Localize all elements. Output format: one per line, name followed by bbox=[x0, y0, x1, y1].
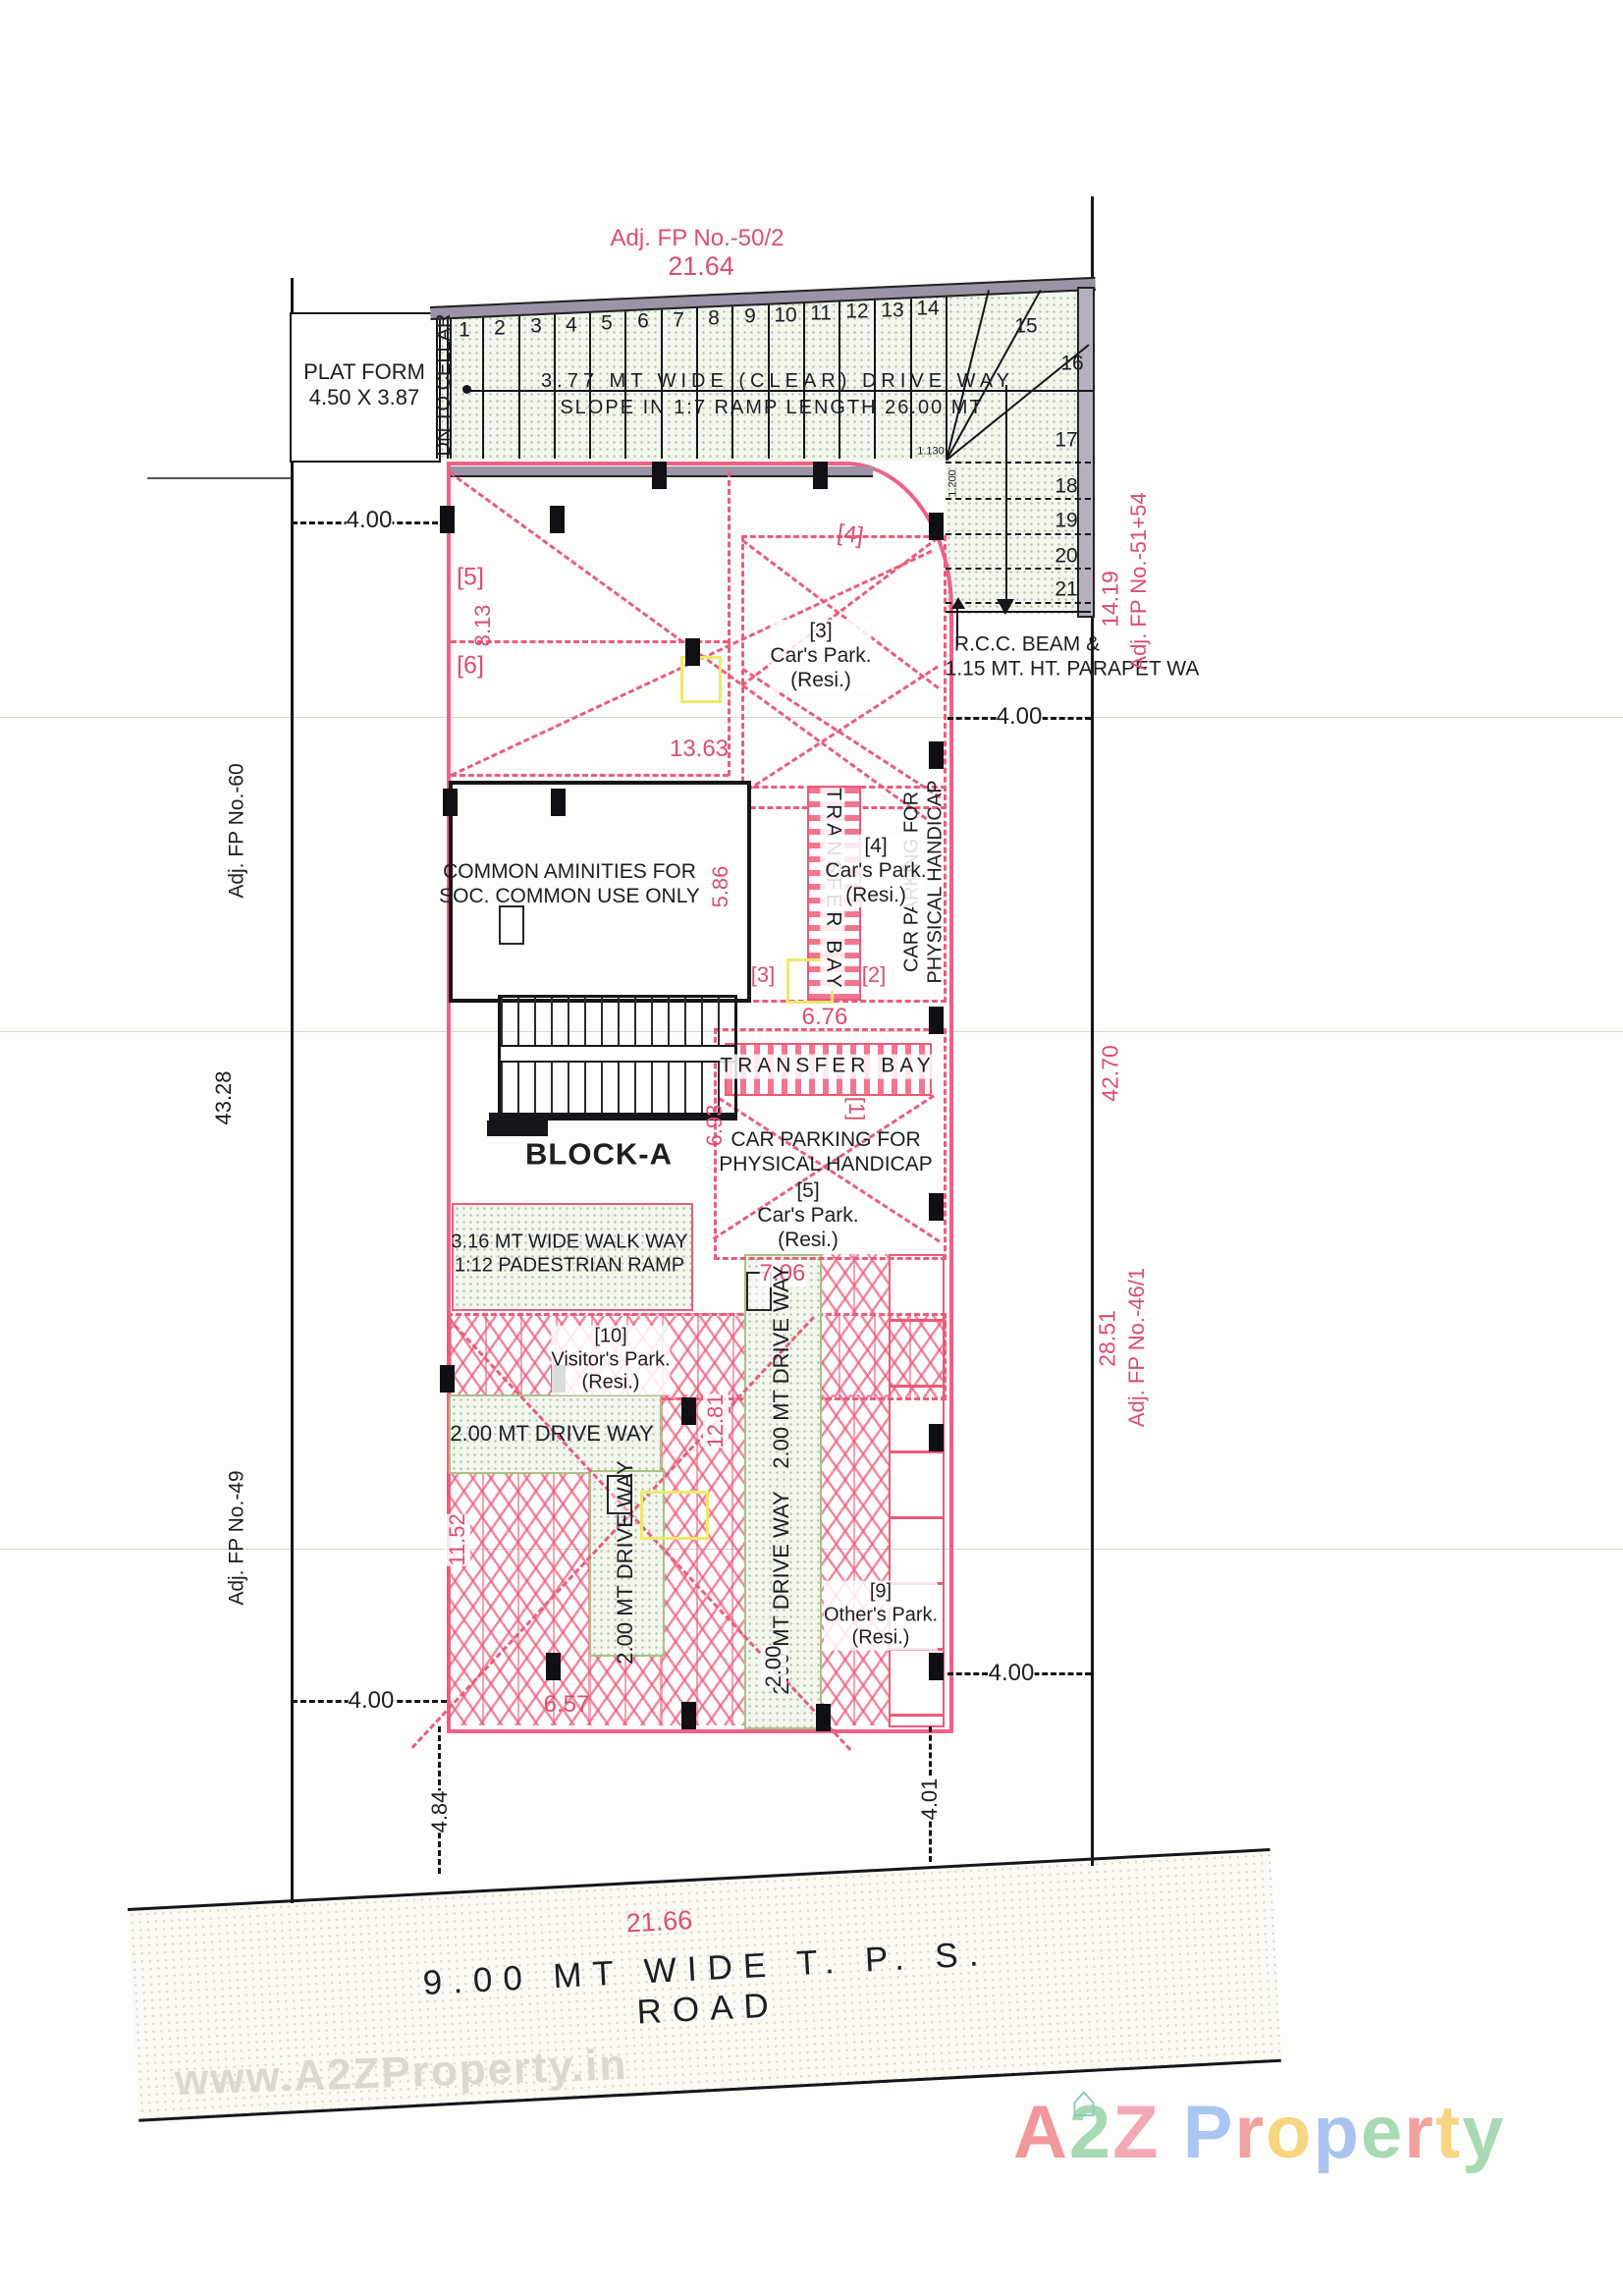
adj-fp-46-1: Adj. FP No.-46/1 bbox=[1124, 1268, 1150, 1427]
fan-bottom-line bbox=[946, 611, 1091, 613]
common-amenities: COMMON AMINITIES FOR SOC. COMMON USE ONL… bbox=[439, 860, 700, 909]
ramp-stall-number-11: 11 bbox=[810, 302, 832, 327]
ramp-stall-number-5: 5 bbox=[601, 312, 613, 337]
walkway: 3.16 MT WIDE WALK WAY 1:12 PADESTRIAN RA… bbox=[451, 1230, 687, 1277]
dim-6-76: 6.76 bbox=[802, 1004, 848, 1031]
ramp-slope: SLOPE IN 1:7 RAMP LENGTH 26.00 MT bbox=[560, 397, 983, 420]
stall-1-label: [1] bbox=[843, 1097, 869, 1121]
ramp-stall-number-15: 15 bbox=[1014, 315, 1037, 340]
column-marker bbox=[929, 1653, 944, 1680]
handicap-h: CAR PARKING FOR PHYSICAL HANDICAP bbox=[719, 1128, 932, 1177]
adj-fp-50-2: Adj. FP No.-50/2 bbox=[611, 225, 784, 252]
ramp-stall-number-16: 16 bbox=[1060, 353, 1083, 377]
ramp-lane-line bbox=[1005, 385, 1007, 601]
down-arrow-icon bbox=[997, 599, 1014, 615]
parking-block bbox=[818, 1394, 891, 1725]
dim-2-00: 2.00 bbox=[761, 1646, 786, 1688]
dim-14-19: 14.19 bbox=[1097, 571, 1123, 628]
rcc-beam-1: R.C.C. BEAM & bbox=[954, 633, 1100, 658]
column-marker bbox=[440, 506, 455, 533]
staircase bbox=[498, 995, 737, 1121]
dim-4-84: 4.84 bbox=[427, 1791, 453, 1833]
parking-divider bbox=[728, 471, 730, 776]
column-marker bbox=[929, 741, 944, 769]
dim-4-top-right: 4.00 bbox=[997, 703, 1043, 731]
ramp-stall-number-21: 21 bbox=[1055, 578, 1077, 603]
column-marker bbox=[681, 1702, 696, 1729]
ramp-drive-way: 3.77 MT WIDE (CLEAR) DRIVE WAY bbox=[541, 370, 1014, 394]
dim-21-64: 21.64 bbox=[668, 251, 734, 283]
road-plot-dim: 21.66 bbox=[625, 1905, 693, 1940]
dim-4-top-left: 4.00 bbox=[347, 507, 393, 534]
stall-3-label: [3] bbox=[751, 962, 775, 988]
column-marker bbox=[550, 506, 565, 533]
ramp-stall-divider bbox=[482, 314, 484, 459]
column-marker bbox=[546, 1653, 561, 1680]
dim-12-81: 12.81 bbox=[703, 1394, 729, 1448]
column-marker bbox=[551, 789, 566, 816]
logo-letter: t bbox=[1435, 2091, 1462, 2174]
ramp-stall-number-19: 19 bbox=[1055, 510, 1077, 534]
dim-8-13: 8.13 bbox=[470, 605, 496, 647]
column-marker bbox=[440, 1365, 455, 1393]
transfer-bay-h: TRANSFER BAY bbox=[720, 1055, 935, 1079]
column-marker bbox=[929, 1424, 944, 1451]
others-park: [9] Other's Park. (Resi.) bbox=[824, 1581, 938, 1651]
logo-letter: r bbox=[1234, 2091, 1266, 2174]
column-marker bbox=[929, 1193, 944, 1221]
ramp-stall-number-8: 8 bbox=[708, 307, 720, 332]
ramp-stall-number-20: 20 bbox=[1055, 545, 1077, 570]
dim-13-63: 13.63 bbox=[670, 736, 729, 763]
logo-letter: p bbox=[1313, 2091, 1360, 2174]
ramp-stall-number-7: 7 bbox=[673, 309, 684, 334]
rcc-beam-2: 1.15 MT. HT. PARAPET WA bbox=[946, 658, 1200, 683]
cars-park-5: [5] Car's Park. (Resi.) bbox=[757, 1179, 858, 1252]
car-turning-icon bbox=[499, 905, 524, 945]
logo-letter: A bbox=[1013, 2091, 1069, 2174]
ramp-stall-number-6: 6 bbox=[637, 310, 649, 335]
dim-11-52: 11.52 bbox=[445, 1513, 470, 1565]
adj-fp-51-54: Adj. FP No.-51+54 bbox=[1126, 492, 1152, 670]
ramp-stall-number-18: 18 bbox=[1055, 475, 1077, 500]
column-marker bbox=[681, 1397, 696, 1425]
column-marker bbox=[685, 638, 700, 666]
site-plan-page: 21.66 9.00 MT WIDE T. P. S. ROAD www.A2Z… bbox=[0, 0, 1623, 2296]
platform-label: PLAT FORM 4.50 X 3.87 bbox=[303, 359, 425, 410]
highlight-box bbox=[640, 1491, 709, 1540]
fan-dim-1200: 1.200 bbox=[947, 469, 960, 497]
stair-landing bbox=[501, 1045, 734, 1063]
ramp-stall-number-3: 3 bbox=[530, 315, 542, 340]
ramp-stall-number-17: 17 bbox=[1055, 429, 1077, 454]
stair-wall-block bbox=[487, 1121, 548, 1136]
logo-letter: r bbox=[1404, 2091, 1435, 2174]
logo-letter: e bbox=[1361, 2091, 1404, 2174]
dn-to-cellar: DN TO CELLAR bbox=[433, 314, 457, 457]
parking-divider bbox=[451, 774, 729, 777]
dim-28-51: 28.51 bbox=[1094, 1310, 1120, 1367]
ramp-stall-number-4: 4 bbox=[566, 314, 577, 339]
visitor-parking-band bbox=[447, 1313, 947, 1400]
stall-6-label: [6] bbox=[457, 651, 484, 681]
driveway-v1: 2.00 MT DRIVE WAY bbox=[613, 1460, 638, 1664]
stall-2-label: [2] bbox=[862, 962, 886, 988]
ramp-stall-divider bbox=[518, 312, 520, 459]
road-name: 9.00 MT WIDE T. P. S. ROAD bbox=[420, 1934, 994, 2045]
stair-wall bbox=[489, 1113, 734, 1121]
parking-block bbox=[818, 1254, 891, 1313]
a2z-property-logo: A2Z Property⌂ bbox=[1013, 2090, 1505, 2175]
cars-park-4: [4] Car's Park. (Resi.) bbox=[825, 835, 926, 907]
cars-park-3: [3] Car's Park. (Resi.) bbox=[770, 620, 871, 692]
logo-letter: o bbox=[1266, 2091, 1313, 2174]
driveway-h: 2.00 MT DRIVE WAY bbox=[450, 1421, 653, 1447]
ramp-line-node bbox=[462, 385, 471, 394]
ramp-stall-number-2: 2 bbox=[494, 317, 506, 342]
driveway-v2: 2.00 MT DRIVE WAY bbox=[769, 1265, 794, 1468]
ramp-stall-number-10: 10 bbox=[774, 304, 796, 329]
dim-6-57: 6.57 bbox=[544, 1691, 590, 1719]
ramp-stall-number-13: 13 bbox=[881, 300, 903, 324]
fan-dim-1130: 1.130 bbox=[917, 446, 945, 459]
adj-fp-60: Adj. FP No.-60 bbox=[226, 763, 250, 898]
up-arrow-icon bbox=[951, 597, 965, 609]
column-marker bbox=[813, 462, 828, 489]
dim-4-bottom-left: 4.00 bbox=[349, 1687, 395, 1715]
column-marker bbox=[929, 1007, 944, 1034]
adj-fp-49: Adj. FP No.-49 bbox=[226, 1470, 250, 1605]
column-marker bbox=[652, 462, 667, 489]
ramp-stall-number-14: 14 bbox=[916, 298, 939, 322]
dim-4-bottom-right: 4.00 bbox=[989, 1660, 1035, 1687]
logo-letter: Z bbox=[1112, 2091, 1160, 2174]
stall-4-top-label: [4] bbox=[836, 519, 865, 551]
logo-letter: y bbox=[1462, 2091, 1505, 2174]
column-marker bbox=[929, 513, 944, 540]
dim-42-70: 42.70 bbox=[1097, 1045, 1123, 1102]
logo-space bbox=[1161, 2091, 1183, 2174]
ramp-stall-number-12: 12 bbox=[845, 301, 868, 325]
house-icon: ⌂ bbox=[1070, 2074, 1100, 2127]
column-marker bbox=[816, 1704, 831, 1731]
dim-4-01: 4.01 bbox=[917, 1778, 943, 1821]
ramp-stall-number-1: 1 bbox=[459, 319, 470, 344]
logo-letter: P bbox=[1183, 2091, 1235, 2174]
dim-43-28: 43.28 bbox=[211, 1070, 237, 1124]
column-marker bbox=[443, 789, 458, 816]
ramp-stall-number-9: 9 bbox=[744, 305, 756, 330]
stall-5-label: [5] bbox=[457, 563, 484, 592]
visitors-park: [10] Visitor's Park. (Resi.) bbox=[551, 1326, 670, 1395]
fan-row-line bbox=[946, 462, 1091, 464]
dim-5-86: 5.86 bbox=[708, 866, 733, 908]
block-a: BLOCK-A bbox=[525, 1137, 673, 1174]
